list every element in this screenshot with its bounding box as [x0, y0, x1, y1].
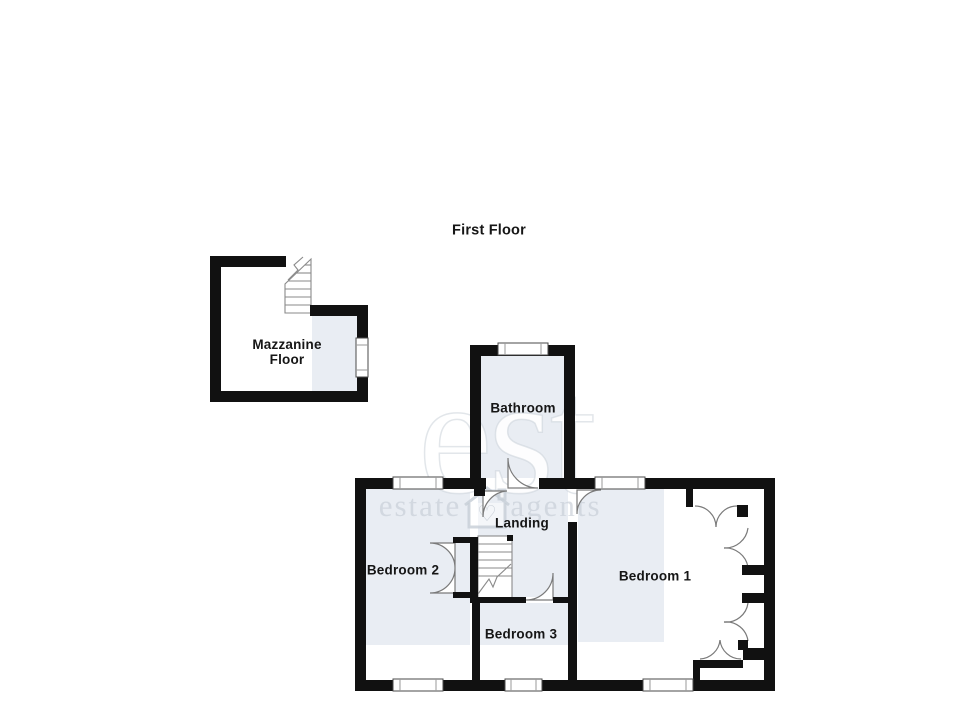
bedroom1-door-arc	[577, 490, 601, 514]
bedroom1-closet-door-arc	[716, 506, 737, 527]
landing-stairs	[478, 536, 512, 598]
bedroom1-closet-door-arc	[695, 506, 716, 527]
window	[505, 679, 542, 691]
room-label-mazzanine: Mazzanine Floor	[252, 337, 321, 367]
mazzanine-stairs	[285, 257, 311, 313]
room-label-landing: Landing	[495, 516, 549, 531]
mazzanine-line1: Mazzanine	[252, 337, 321, 352]
room-label-bedroom2: Bedroom 2	[367, 563, 439, 578]
room-label-bathroom: Bathroom	[490, 401, 555, 416]
bathroom-door-arc	[508, 458, 538, 488]
bedroom1-closet-door-arc	[724, 548, 748, 567]
window	[393, 679, 443, 691]
window	[498, 343, 548, 355]
bedroom1-closet-door-arc	[720, 640, 741, 659]
bedroom1-closet-door-arc	[724, 622, 748, 641]
floor-plan: est estate agents ♡	[0, 0, 980, 712]
landing-door-arc	[483, 491, 507, 517]
room-label-bedroom3: Bedroom 3	[485, 627, 557, 642]
plan-linework	[0, 0, 980, 712]
mazzanine-line2: Floor	[270, 352, 305, 367]
bedroom1-closet-door-arc	[700, 640, 720, 659]
window	[356, 338, 368, 377]
window	[643, 679, 693, 691]
room-label-bedroom1: Bedroom 1	[619, 569, 691, 584]
window	[393, 477, 443, 489]
bedroom1-closet-door-arc	[724, 603, 748, 622]
window	[595, 477, 645, 489]
bedroom1-closet-door-arc	[724, 528, 748, 548]
bedroom3-door-arc	[526, 573, 553, 600]
stair-newel-post	[507, 535, 513, 541]
page-title: First Floor	[452, 224, 526, 239]
